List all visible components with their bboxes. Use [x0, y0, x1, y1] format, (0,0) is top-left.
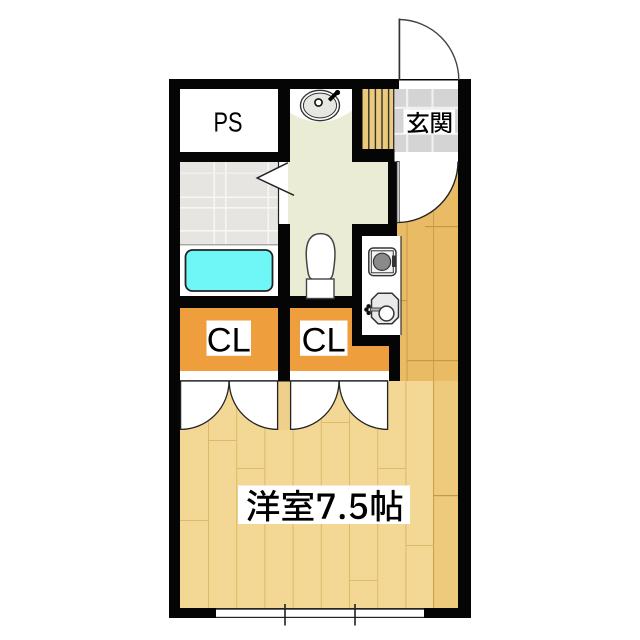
svg-text:CL: CL	[302, 322, 346, 360]
svg-text:CL: CL	[207, 322, 251, 360]
svg-text:PS: PS	[214, 107, 243, 138]
